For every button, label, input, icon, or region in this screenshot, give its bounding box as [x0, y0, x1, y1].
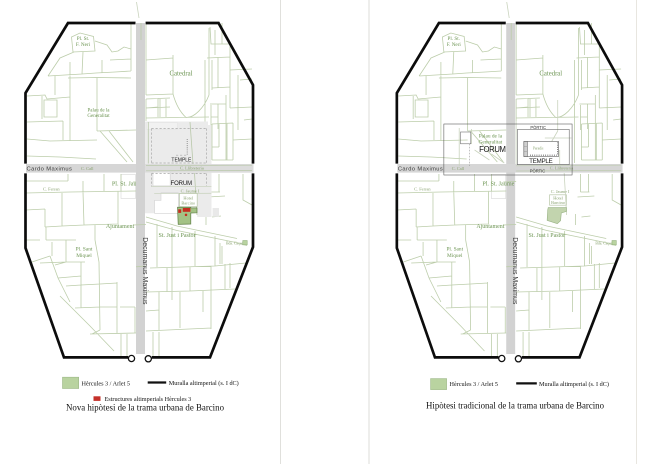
svg-text:C. Jaume I: C. Jaume I [181, 189, 200, 194]
svg-text:Hèrcules 3 / Arlet 5: Hèrcules 3 / Arlet 5 [82, 381, 130, 388]
svg-text:PÒRTIC: PÒRTIC [530, 168, 546, 173]
svg-text:Hèrcules 3 / Arlet 5: Hèrcules 3 / Arlet 5 [450, 381, 498, 388]
svg-text:Muralla altimperial (s. I dC): Muralla altimperial (s. I dC) [169, 380, 239, 387]
svg-text:Nova hipòtesi de la trama urba: Nova hipòtesi de la trama urbana de Barc… [66, 403, 224, 414]
svg-text:TEMPLE: TEMPLE [171, 158, 192, 164]
svg-text:C. Llibreteria: C. Llibreteria [180, 165, 204, 170]
svg-text:TEMPLE: TEMPLE [529, 158, 552, 165]
svg-text:PÒRTIC: PÒRTIC [530, 125, 546, 130]
svg-text:FORUM: FORUM [479, 145, 506, 154]
svg-text:Palau de la: Palau de la [88, 109, 111, 114]
svg-text:FORUM: FORUM [171, 181, 193, 187]
svg-text:Hipòtesi tradicional de la tra: Hipòtesi tradicional de la trama urbana … [426, 401, 604, 412]
svg-text:Muralla altimperial (s. I dC): Muralla altimperial (s. I dC) [539, 381, 609, 388]
svg-text:Generalitat: Generalitat [87, 114, 110, 119]
svg-text:Paradis: Paradis [533, 146, 544, 150]
svg-text:Barcino: Barcino [181, 201, 196, 206]
